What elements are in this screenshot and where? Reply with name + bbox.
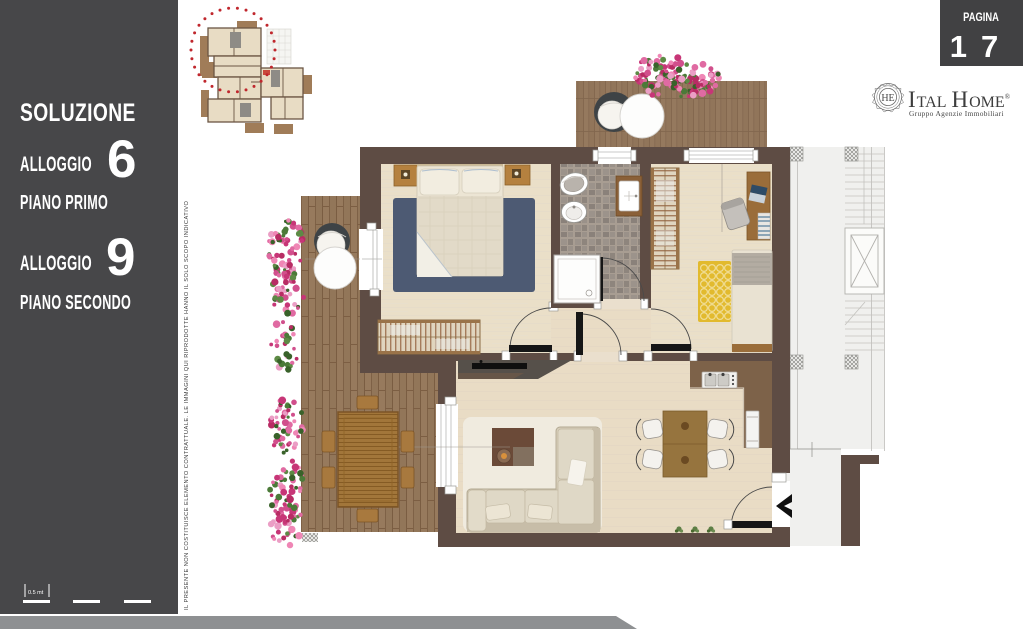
svg-text:0.5 mt: 0.5 mt xyxy=(28,590,44,596)
svg-text:PIANO PRIMO: PIANO PRIMO xyxy=(20,191,108,214)
svg-text:SOLUZIONE: SOLUZIONE xyxy=(20,99,136,127)
svg-text:Gruppo Agenzie Immobiliari: Gruppo Agenzie Immobiliari xyxy=(909,109,1004,118)
svg-text:PIANO SECONDO: PIANO SECONDO xyxy=(20,291,131,314)
svg-text:6: 6 xyxy=(107,130,136,189)
svg-text:ALLOGGIO: ALLOGGIO xyxy=(20,251,92,275)
svg-text:IL PRESENTE NON COSTITUISCE EL: IL PRESENTE NON COSTITUISCE ELEMENTO CON… xyxy=(184,200,190,610)
svg-text:PAGINA: PAGINA xyxy=(963,11,999,24)
svg-text:ALLOGGIO: ALLOGGIO xyxy=(20,152,92,176)
svg-text:17: 17 xyxy=(950,29,1012,64)
svg-text:HE: HE xyxy=(881,93,894,104)
svg-text:9: 9 xyxy=(106,228,135,287)
